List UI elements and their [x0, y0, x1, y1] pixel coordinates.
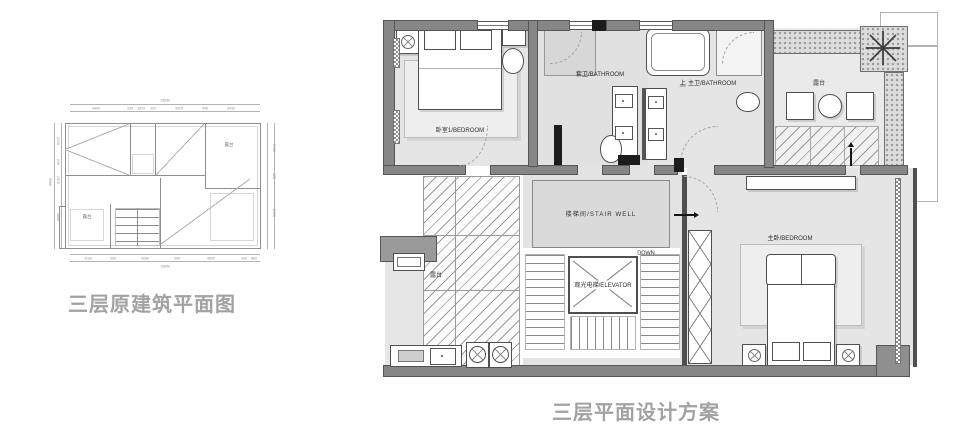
- wardrobe-cell: [689, 264, 711, 297]
- toilet: [736, 92, 760, 112]
- window: [640, 21, 672, 30]
- curtain-strip: [393, 38, 400, 68]
- dim-line: [70, 254, 260, 255]
- door-arrow-head: [848, 142, 854, 147]
- deck-divider: [810, 126, 811, 166]
- skylight-mullion: [423, 290, 520, 291]
- wardrobe-cell: [689, 231, 711, 264]
- room-label: 露台: [82, 213, 91, 220]
- wall-notch: [59, 206, 66, 249]
- wall: [130, 123, 131, 176]
- dim-label: 9080: [48, 172, 52, 192]
- original-plan: 13640 4400 230 1470 220 3420 240 3430 31…: [46, 96, 284, 296]
- wall: [672, 20, 772, 31]
- room-label-bath1: 套卫/BATHROOM: [576, 70, 624, 79]
- counter-item: [398, 350, 424, 362]
- window-inner: [397, 257, 421, 267]
- curtain-strip: [393, 110, 400, 144]
- tree-icon: [863, 29, 903, 67]
- stair-well-label: 楼梯间/STAIR WELL: [566, 210, 637, 219]
- dim-label: 3700: [272, 138, 276, 158]
- dim-label: 860: [244, 257, 264, 261]
- pillow: [460, 30, 492, 50]
- wall-corner-block: [876, 345, 910, 377]
- ceiling-line: [156, 124, 204, 175]
- caption-original-plan: 三层原建筑平面图: [68, 288, 236, 317]
- mosaic-border: [772, 30, 868, 54]
- dim-label: 220: [272, 166, 276, 186]
- room-label: 露台: [224, 141, 233, 148]
- wall: [764, 20, 774, 168]
- door-arrow-head: [694, 212, 699, 218]
- dim-line: [70, 261, 260, 262]
- dim-label: 3430: [221, 107, 241, 111]
- bath2-label: 主卫/BATHROOM: [688, 80, 736, 87]
- bed-line: [419, 68, 501, 69]
- wardrobe-cell: [689, 297, 711, 330]
- dim-label: 2710: [56, 131, 60, 151]
- dim-label: 13640: [155, 265, 175, 269]
- decor-icon: [401, 35, 415, 49]
- wall: [508, 20, 570, 31]
- ceiling-line: [66, 150, 129, 175]
- sink: [430, 348, 456, 365]
- wall: [383, 165, 466, 175]
- wardrobe-cell: [689, 330, 711, 363]
- wardrobe: [688, 230, 712, 364]
- sink: [648, 96, 664, 109]
- detail-rect: [132, 154, 154, 174]
- wall: [110, 204, 111, 249]
- window: [570, 21, 592, 30]
- dim-label: 2880: [56, 207, 60, 227]
- wall-post: [618, 155, 640, 165]
- dim-label: 240: [195, 107, 215, 111]
- terrace-table: [846, 92, 874, 120]
- dim-label: 13640: [155, 99, 175, 103]
- door-arrow: [850, 148, 852, 166]
- sink: [648, 128, 664, 141]
- washer-drum: [492, 346, 509, 363]
- dim-label: 4400: [86, 107, 106, 111]
- wall: [65, 175, 206, 176]
- dim-label: 230: [103, 257, 123, 261]
- dim-label: 5150: [272, 203, 276, 223]
- design-plan: 卧室1/BEDROOM 套卫/BATHROOM 上主卫/BATHROOM: [378, 8, 956, 393]
- stair-divider: [137, 208, 138, 246]
- wall: [714, 165, 846, 175]
- terrace-table: [786, 92, 814, 120]
- caption-design-plan: 三层平面设计方案: [552, 396, 720, 425]
- ceiling-line: [66, 124, 129, 149]
- dim-label: 220: [56, 152, 60, 172]
- door-arrow: [674, 214, 694, 216]
- planter: [860, 26, 908, 72]
- washer: [466, 342, 489, 368]
- nightstand: [742, 344, 766, 366]
- bathtub: [646, 28, 710, 76]
- pillow: [772, 342, 800, 361]
- stair-flight: [640, 254, 680, 350]
- stair-flight: [570, 316, 636, 350]
- sink: [615, 94, 633, 108]
- sink: [615, 126, 633, 140]
- wall: [606, 20, 640, 31]
- room-label-bedroom1: 卧室1/BEDROOM: [436, 126, 484, 135]
- wall: [913, 168, 917, 367]
- mosaic-border: [884, 72, 904, 168]
- dim-label: 240: [167, 257, 187, 261]
- wall: [383, 20, 478, 31]
- deck-divider: [844, 126, 845, 166]
- skylight-mullion: [423, 235, 520, 236]
- wall-post: [592, 20, 606, 31]
- nightstand: [836, 344, 860, 366]
- window: [478, 21, 508, 30]
- dim-label: 3190: [78, 257, 98, 261]
- lamp-icon: [842, 349, 855, 362]
- down-label: DOWN: [637, 250, 654, 256]
- bathtub-inner: [651, 33, 705, 71]
- wall-post: [674, 158, 684, 172]
- lamp-icon: [748, 349, 761, 362]
- washer-drum: [469, 346, 486, 363]
- room-label-terrace-left: 露台: [430, 271, 442, 280]
- floor-plan-sheet: 13640 4400 230 1470 220 3420 240 3430 31…: [0, 0, 961, 433]
- window-unit: [393, 253, 425, 271]
- bench: [766, 254, 836, 286]
- fixture: [502, 48, 524, 74]
- terrace-table-round: [818, 94, 842, 118]
- pillow: [803, 342, 831, 361]
- door-post: [554, 125, 562, 165]
- dim-line: [267, 123, 268, 249]
- up-mark: 上: [680, 80, 686, 87]
- dim-line: [70, 104, 260, 105]
- dim-label: 2370: [56, 170, 60, 190]
- washer: [489, 342, 512, 368]
- dim-label: 220: [143, 107, 163, 111]
- dim-label: 4540: [201, 257, 221, 261]
- curtain-strip: [895, 178, 901, 364]
- ceiling-line: [161, 179, 250, 244]
- wall: [528, 20, 538, 167]
- wall: [602, 165, 630, 175]
- tv-console: [746, 176, 856, 190]
- skylight-mullion: [455, 176, 456, 366]
- stair-flight: [525, 254, 565, 350]
- dim-label: 4260: [135, 257, 155, 261]
- wall: [860, 165, 908, 175]
- deck-boards: [775, 126, 879, 166]
- room-label-bath2: 上主卫/BATHROOM: [680, 79, 737, 88]
- vanity-wall: [642, 88, 645, 160]
- dim-label: 3420: [169, 107, 189, 111]
- room-label-master: 主卧/BEDROOM: [767, 234, 812, 243]
- dim-line: [70, 111, 260, 112]
- elevator-label: 观光电梯/ELEVATOR: [573, 281, 632, 290]
- pillow: [424, 30, 456, 50]
- room-label-terrace-top: 露台: [813, 79, 825, 88]
